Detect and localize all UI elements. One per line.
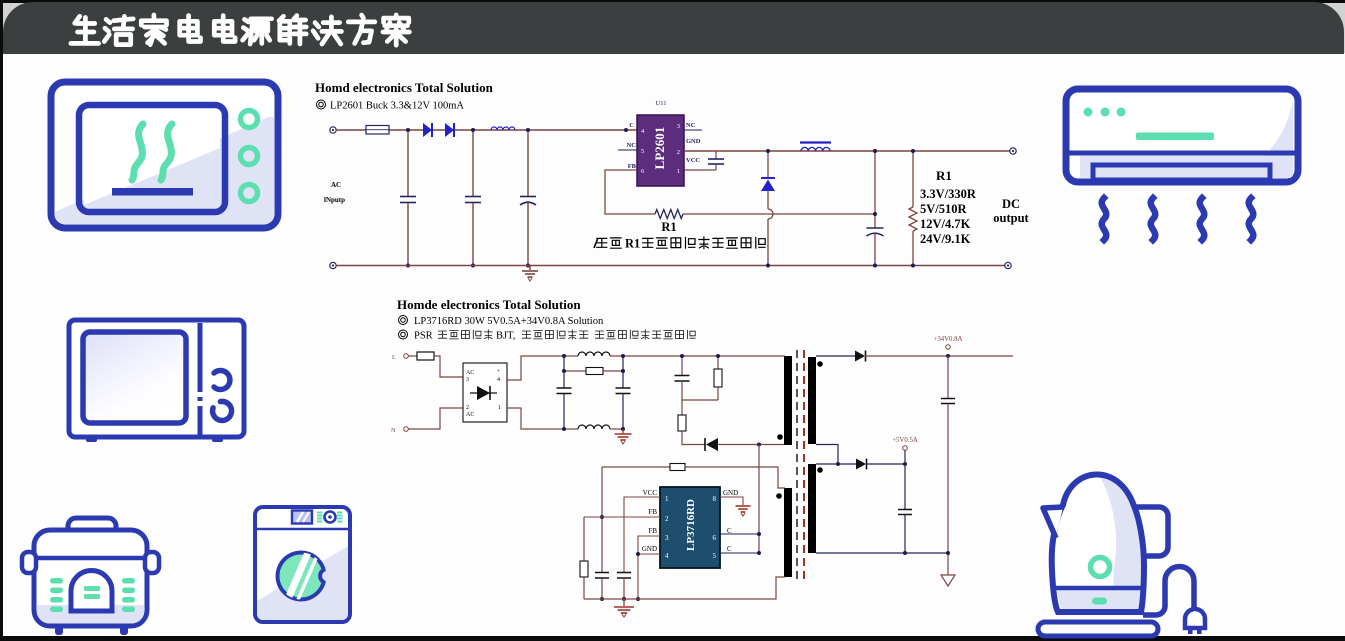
svg-text:2: 2 bbox=[677, 149, 680, 156]
svg-text:3: 3 bbox=[665, 534, 669, 542]
svg-text:L: L bbox=[392, 354, 396, 361]
svg-text:NC: NC bbox=[627, 142, 637, 149]
svg-text:FB: FB bbox=[648, 508, 657, 516]
svg-text:3: 3 bbox=[677, 123, 680, 130]
svg-text:DC: DC bbox=[1002, 197, 1020, 211]
svg-text:U11: U11 bbox=[656, 100, 667, 107]
svg-text:6: 6 bbox=[713, 534, 717, 542]
svg-text:1: 1 bbox=[498, 405, 501, 411]
svg-text:4: 4 bbox=[665, 552, 669, 560]
svg-text:2: 2 bbox=[466, 405, 469, 411]
svg-text:FB: FB bbox=[648, 527, 657, 535]
svg-text:2: 2 bbox=[665, 515, 669, 523]
svg-text:C: C bbox=[727, 545, 732, 553]
svg-text:PSR: PSR bbox=[414, 331, 433, 342]
svg-text:AC: AC bbox=[466, 370, 474, 376]
svg-text:3: 3 bbox=[466, 377, 469, 383]
svg-text:Homde electronics Total Solut: Homde electronics Total Solution bbox=[397, 297, 581, 312]
svg-text:LP3716RD 30W 5V0.5A+34V0.8A So: LP3716RD 30W 5V0.5A+34V0.8A Solution bbox=[414, 316, 604, 327]
svg-text:1: 1 bbox=[665, 495, 669, 503]
svg-text:N: N bbox=[391, 427, 396, 434]
svg-text:AC: AC bbox=[466, 412, 474, 418]
svg-text:LP2601: LP2601 bbox=[652, 127, 667, 170]
svg-text:GND: GND bbox=[686, 138, 701, 145]
svg-text:FB: FB bbox=[628, 163, 637, 170]
svg-text:12V/4.7K: 12V/4.7K bbox=[920, 217, 971, 231]
svg-text:+34V0.8A: +34V0.8A bbox=[934, 336, 963, 343]
svg-text:R1: R1 bbox=[936, 168, 952, 183]
svg-text:R1: R1 bbox=[661, 220, 676, 234]
svg-text:NC: NC bbox=[686, 122, 696, 129]
svg-text:5V/510R: 5V/510R bbox=[920, 202, 968, 216]
svg-text:lNputp: lNputp bbox=[324, 196, 345, 204]
svg-text:LP3716RD: LP3716RD bbox=[685, 499, 697, 551]
svg-text:24V/9.1K: 24V/9.1K bbox=[920, 232, 971, 246]
svg-text:BJT,: BJT, bbox=[496, 331, 515, 342]
svg-text:AC: AC bbox=[331, 181, 341, 189]
svg-text:5: 5 bbox=[713, 552, 717, 560]
svg-text:GND: GND bbox=[723, 489, 738, 497]
svg-text:LP2601 Buck 3.3&12V 100mA: LP2601 Buck 3.3&12V 100mA bbox=[330, 101, 464, 112]
svg-text:8: 8 bbox=[713, 495, 717, 503]
svg-text:VCC: VCC bbox=[643, 489, 658, 497]
svg-text:+5V0.5A: +5V0.5A bbox=[892, 437, 918, 444]
svg-text:Homd electronics Total Soluti: Homd electronics Total Solution bbox=[315, 80, 494, 95]
svg-text:output: output bbox=[993, 211, 1029, 225]
svg-text:C: C bbox=[629, 122, 634, 129]
svg-text:5: 5 bbox=[641, 148, 644, 155]
svg-text:3.3V/330R: 3.3V/330R bbox=[920, 187, 977, 201]
svg-text:R1: R1 bbox=[625, 237, 640, 251]
svg-text:VCC: VCC bbox=[686, 157, 700, 164]
svg-text:GND: GND bbox=[642, 545, 657, 553]
svg-text:1: 1 bbox=[677, 168, 680, 175]
svg-text:4: 4 bbox=[497, 377, 500, 383]
